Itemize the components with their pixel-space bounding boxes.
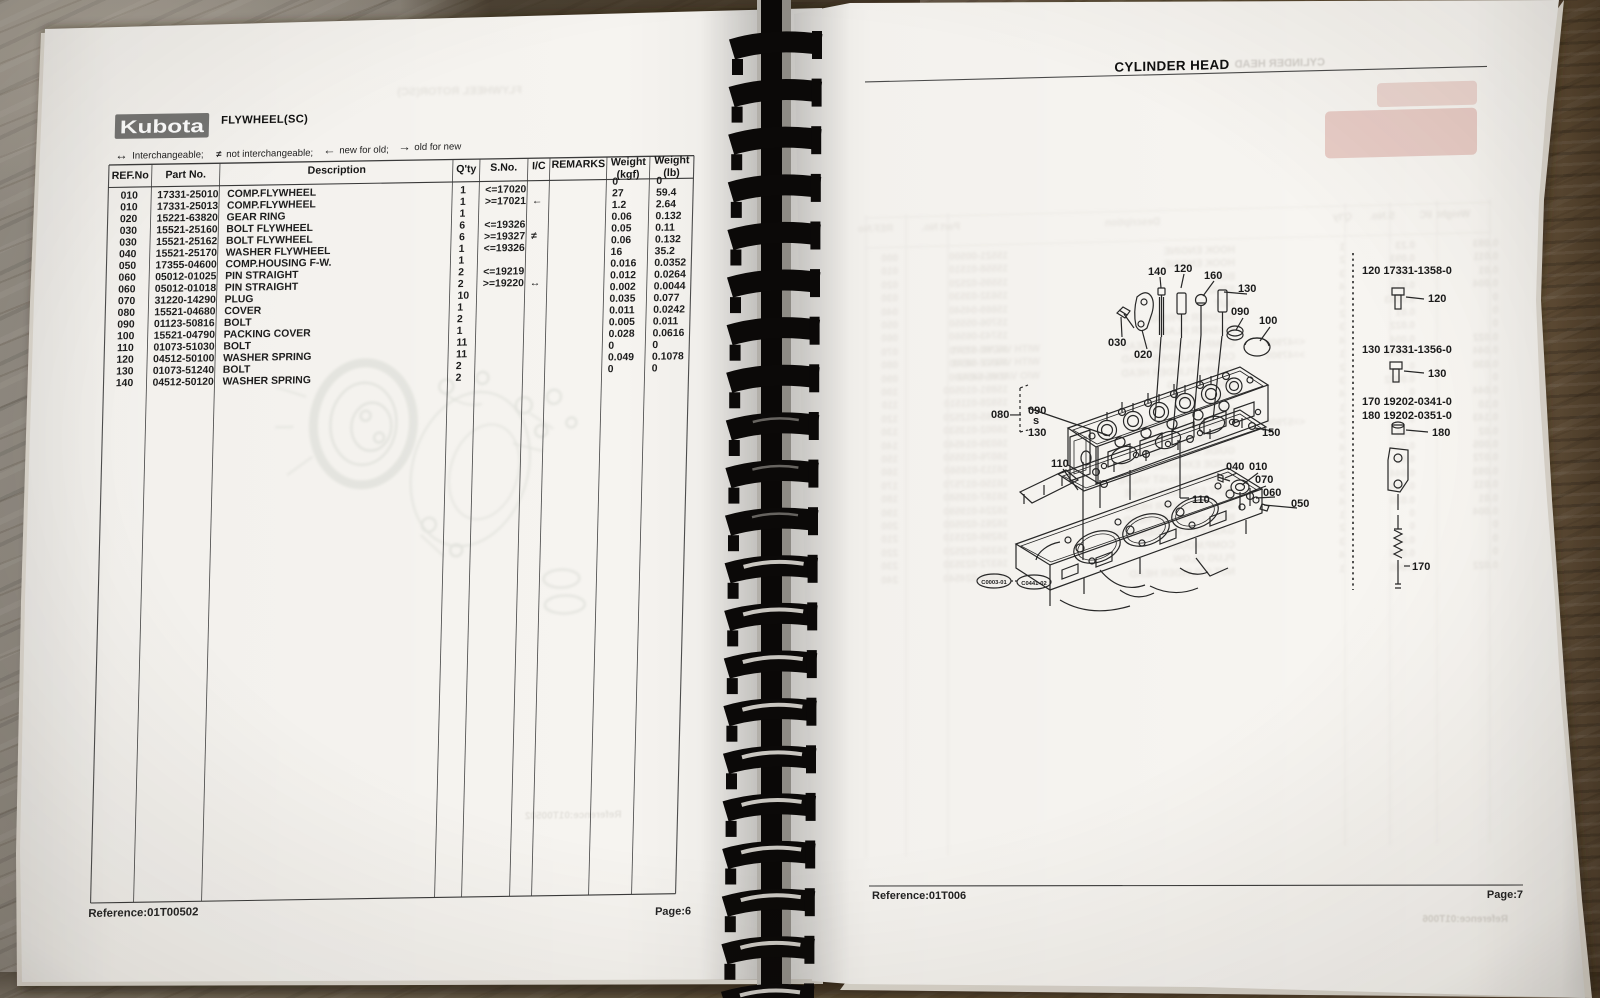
svg-text:0.1078: 0.1078 [652, 351, 684, 363]
svg-text:<=19219: <=19219 [483, 266, 525, 278]
svg-text:1: 1 [459, 209, 465, 220]
svg-text:0.011: 0.011 [609, 305, 635, 316]
svg-text:Description: Description [1105, 217, 1160, 229]
svg-text:3: 3 [1339, 269, 1345, 280]
svg-text:0.011: 0.011 [1473, 251, 1498, 263]
svg-text:110: 110 [881, 400, 898, 411]
svg-text:0: 0 [1492, 292, 1498, 303]
svg-text:230: 230 [881, 561, 898, 572]
svg-text:0.0352: 0.0352 [654, 258, 686, 270]
svg-text:01123-50816: 01123-50816 [154, 318, 215, 330]
svg-text:200: 200 [881, 521, 898, 532]
svg-text:Page:7: Page:7 [1487, 889, 1523, 901]
svg-text:0.0242: 0.0242 [653, 304, 685, 316]
svg-text:160: 160 [1204, 270, 1222, 282]
svg-text:140: 140 [881, 441, 898, 452]
svg-text:6: 6 [459, 220, 465, 231]
svg-text:PACKING COVER: PACKING COVER [224, 328, 312, 340]
svg-text:Q'ty: Q'ty [456, 163, 477, 175]
svg-text:0: 0 [1492, 372, 1498, 383]
svg-text:11: 11 [456, 338, 467, 349]
svg-text:0.022: 0.022 [1390, 320, 1415, 332]
svg-text:FLYWHEEL ROTOR(SC): FLYWHEEL ROTOR(SC) [397, 84, 522, 98]
svg-text:0.093: 0.093 [1473, 238, 1498, 250]
svg-text:0: 0 [608, 364, 614, 375]
svg-text:0.01: 0.01 [1478, 265, 1498, 276]
svg-text:070: 070 [881, 347, 898, 358]
svg-text:070: 070 [1255, 474, 1273, 486]
svg-text:<=19326: <=19326 [484, 243, 526, 255]
svg-text:REF.No: REF.No [112, 169, 150, 182]
svg-text:PIN STRAIGHT: PIN STRAIGHT [225, 270, 299, 282]
svg-text:030: 030 [881, 293, 898, 304]
svg-text:16002-013530: 16002-013530 [943, 424, 1008, 437]
svg-text:>=19327: >=19327 [484, 231, 526, 243]
svg-text:1: 1 [1339, 403, 1345, 414]
svg-text:0.035: 0.035 [609, 294, 635, 305]
svg-text:0.143: 0.143 [1473, 412, 1498, 424]
svg-text:2: 2 [1339, 470, 1345, 481]
svg-text:130: 130 [881, 427, 898, 438]
svg-text:WASHER SPRING: WASHER SPRING [223, 352, 312, 364]
svg-text:(lb): (lb) [663, 167, 680, 179]
svg-text:16298-021510: 16298-021510 [943, 531, 1008, 544]
svg-text:170: 170 [881, 481, 898, 492]
svg-text:Reference:01T00502: Reference:01T00502 [524, 810, 621, 823]
svg-text:↔: ↔ [115, 148, 128, 162]
svg-text:3: 3 [1339, 537, 1345, 548]
svg-text:110: 110 [1192, 494, 1210, 506]
svg-text:0: 0 [608, 341, 614, 352]
svg-text:000: 000 [881, 253, 898, 264]
svg-text:0: 0 [1492, 533, 1498, 544]
svg-text:15521-25162: 15521-25162 [156, 236, 218, 248]
svg-text:15632-03530: 15632-03530 [949, 290, 1008, 302]
svg-text:0.002: 0.002 [610, 282, 636, 293]
svg-text:0.093: 0.093 [1473, 466, 1498, 478]
svg-text:PIN STRAIGHT: PIN STRAIGHT [225, 282, 299, 294]
svg-text:080: 080 [881, 360, 898, 371]
svg-text:0.022: 0.022 [1473, 560, 1498, 572]
svg-text:COMP.FLYWHEEL: COMP.FLYWHEEL [227, 188, 317, 200]
svg-text:0: 0 [1409, 508, 1415, 519]
svg-text:←: ← [532, 196, 543, 207]
svg-text:Interchangeable;: Interchangeable; [132, 149, 204, 161]
svg-text:0.072: 0.072 [1473, 452, 1498, 464]
svg-text:1: 1 [459, 244, 465, 255]
svg-text:0.049: 0.049 [608, 352, 634, 363]
svg-text:FLYWHEEL(SC): FLYWHEEL(SC) [221, 113, 308, 126]
svg-text:030: 030 [1108, 337, 1126, 349]
svg-text:15891-010500: 15891-010500 [943, 384, 1008, 397]
svg-text:Part No.: Part No. [921, 222, 960, 234]
svg-text:15595-02520: 15595-02520 [949, 277, 1008, 289]
svg-text:150: 150 [1262, 427, 1280, 439]
svg-text:0.022: 0.022 [1390, 441, 1415, 453]
svg-text:C0003-01: C0003-01 [981, 580, 1007, 586]
svg-text:0: 0 [1492, 318, 1498, 329]
svg-text:WITH VALVE SEAT: WITH VALVE SEAT [951, 357, 1040, 370]
svg-text:CYLINDER HEAD: CYLINDER HEAD [1114, 57, 1229, 75]
svg-text:180: 180 [881, 494, 898, 505]
svg-text:180: 180 [1432, 427, 1450, 439]
svg-text:0: 0 [1409, 361, 1415, 372]
svg-text:140: 140 [116, 378, 134, 389]
svg-text:15706-05550: 15706-05550 [949, 317, 1008, 329]
svg-text:0.23: 0.23 [1395, 240, 1415, 251]
svg-text:010: 010 [120, 202, 138, 213]
svg-text:050: 050 [881, 320, 898, 331]
svg-text:Description: Description [307, 164, 366, 177]
svg-text:120 17331-1358-0: 120 17331-1358-0 [1362, 265, 1452, 277]
svg-text:180 19202-0351-0: 180 19202-0351-0 [1362, 410, 1452, 422]
svg-text:<=17020: <=17020 [485, 184, 527, 196]
svg-text:>=19220: >=19220 [483, 278, 525, 290]
svg-text:070: 070 [118, 296, 136, 307]
svg-text:0.016: 0.016 [610, 258, 636, 269]
svg-text:0: 0 [1492, 305, 1498, 316]
svg-text:Reference:01T006: Reference:01T006 [872, 890, 966, 902]
svg-text:0.030: 0.030 [1473, 359, 1498, 371]
svg-text:170: 170 [1412, 561, 1430, 573]
svg-text:0.077: 0.077 [653, 293, 679, 304]
svg-text:240: 240 [881, 575, 898, 586]
svg-text:31220-14290: 31220-14290 [154, 295, 216, 307]
svg-text:0.022: 0.022 [1473, 332, 1498, 344]
svg-text:020: 020 [120, 214, 138, 225]
svg-text:16261-020500: 16261-020500 [943, 518, 1008, 531]
svg-text:0.004: 0.004 [1473, 278, 1498, 290]
svg-text:<=47908: <=47908 [1265, 337, 1305, 349]
svg-text:04512-50100: 04512-50100 [153, 353, 215, 365]
svg-text:W/O VALVE SEAT: W/O VALVE SEAT [957, 371, 1040, 384]
svg-text:04512-50120: 04512-50120 [152, 377, 214, 389]
svg-text:130: 130 [1028, 427, 1046, 439]
svg-text:I/C: I/C [532, 160, 546, 172]
svg-text:BOLT FLYWHEEL: BOLT FLYWHEEL [226, 235, 313, 247]
svg-text:010: 010 [120, 191, 138, 202]
svg-text:0.02: 0.02 [1478, 426, 1498, 437]
svg-text:old for new: old for new [414, 141, 461, 153]
svg-text:BOLT: BOLT [223, 364, 251, 375]
svg-text:2: 2 [1339, 416, 1345, 427]
svg-text:0.012: 0.012 [610, 270, 636, 281]
svg-text:COMP.HOUSING F-W.: COMP.HOUSING F-W. [225, 258, 331, 271]
svg-text:1: 1 [457, 302, 463, 313]
svg-text:new for old;: new for old; [339, 145, 389, 157]
svg-text:100: 100 [117, 331, 135, 342]
svg-text:010: 010 [881, 266, 898, 277]
svg-text:1: 1 [1339, 456, 1345, 467]
svg-text:060: 060 [881, 333, 898, 344]
svg-text:160: 160 [881, 467, 898, 478]
svg-text:210: 210 [881, 534, 898, 545]
svg-text:0.011: 0.011 [1473, 479, 1498, 491]
svg-text:3: 3 [1339, 376, 1345, 387]
svg-text:080: 080 [991, 409, 1009, 421]
svg-text:—: — [1010, 409, 1021, 421]
svg-text:BOLT FLYWHEEL: BOLT FLYWHEEL [226, 223, 313, 235]
svg-text:Kubota: Kubota [120, 115, 205, 137]
svg-text:15521-00500: 15521-00500 [949, 250, 1008, 262]
svg-text:030: 030 [119, 237, 137, 248]
svg-text:4: 4 [1339, 389, 1345, 400]
svg-text:Weight: Weight [654, 154, 690, 167]
svg-text:11: 11 [456, 349, 467, 360]
svg-text:35.2: 35.2 [654, 246, 675, 257]
svg-text:↔: ↔ [530, 278, 541, 289]
svg-text:2: 2 [1339, 255, 1345, 266]
svg-text:16039-014540: 16039-014540 [943, 438, 1008, 451]
svg-text:Weight: Weight [1436, 209, 1470, 221]
svg-text:4: 4 [1339, 443, 1345, 454]
svg-text:HOOK ENGINE: HOOK ENGINE [1164, 245, 1235, 258]
svg-text:040: 040 [1226, 461, 1244, 473]
svg-text:10: 10 [457, 291, 469, 302]
svg-text:0.132: 0.132 [655, 234, 681, 245]
svg-text:090: 090 [1231, 306, 1249, 318]
svg-text:2: 2 [458, 279, 464, 290]
svg-text:3: 3 [1339, 483, 1345, 494]
svg-text:2: 2 [456, 361, 462, 372]
svg-text:16150-017570: 16150-017570 [943, 478, 1008, 491]
svg-text:15521-04790: 15521-04790 [154, 330, 216, 342]
svg-text:080: 080 [117, 308, 135, 319]
svg-text:05012-01025: 05012-01025 [155, 271, 217, 283]
svg-text:15558-01510: 15558-01510 [949, 263, 1008, 275]
svg-text:0.030: 0.030 [1390, 495, 1415, 507]
svg-text:COMP.MOUNT: COMP.MOUNT [1167, 540, 1235, 553]
svg-text:1: 1 [460, 197, 466, 208]
svg-text:0.0044: 0.0044 [654, 281, 686, 293]
svg-text:0: 0 [652, 363, 658, 374]
svg-text:27: 27 [612, 188, 624, 199]
svg-text:0.093: 0.093 [1390, 253, 1415, 265]
svg-text:WASHER PLAIN: WASHER PLAIN [1158, 325, 1235, 338]
svg-text:060: 060 [1263, 487, 1281, 499]
svg-text:0.01: 0.01 [1478, 493, 1498, 504]
svg-text:0.132: 0.132 [655, 211, 681, 222]
svg-text:120: 120 [1428, 293, 1446, 305]
svg-text:2: 2 [457, 314, 463, 325]
svg-text:2: 2 [1339, 363, 1345, 374]
svg-text:4: 4 [1339, 282, 1345, 293]
svg-text:4: 4 [1339, 497, 1345, 508]
svg-text:1: 1 [1339, 242, 1345, 253]
svg-text:100: 100 [881, 387, 898, 398]
svg-text:16372-023530: 16372-023530 [943, 558, 1008, 571]
svg-text:0.028: 0.028 [608, 329, 634, 340]
svg-text:0.044: 0.044 [1473, 385, 1498, 397]
svg-text:1: 1 [1339, 349, 1345, 360]
svg-text:15521-25160: 15521-25160 [156, 224, 218, 236]
svg-text:050: 050 [1291, 498, 1309, 510]
svg-text:s: s [1033, 415, 1039, 427]
svg-text:01073-51030: 01073-51030 [153, 342, 215, 354]
svg-text:←: ← [323, 143, 336, 157]
svg-text:PLUG: PLUG [224, 294, 253, 305]
svg-text:220: 220 [881, 548, 898, 559]
svg-text:I/C: I/C [1419, 210, 1432, 221]
svg-text:0.005: 0.005 [609, 317, 635, 328]
svg-text:0.06: 0.06 [611, 235, 632, 246]
svg-text:>=17021: >=17021 [485, 196, 527, 208]
svg-text:3: 3 [1339, 322, 1345, 333]
svg-text:1.2: 1.2 [612, 200, 627, 211]
svg-text:1: 1 [457, 326, 463, 337]
svg-text:0.0063: 0.0063 [1384, 294, 1415, 306]
svg-text:020: 020 [1134, 349, 1152, 361]
svg-text:120: 120 [1174, 263, 1192, 275]
svg-text:17331-25013: 17331-25013 [157, 201, 219, 213]
svg-text:4: 4 [1339, 550, 1345, 561]
svg-text:2: 2 [458, 267, 464, 278]
svg-text:COMP.FLYWHEEL: COMP.FLYWHEEL [227, 199, 317, 211]
svg-text:BOLT: BOLT [223, 341, 251, 352]
svg-text:4: 4 [1339, 336, 1345, 347]
svg-text:16224-019590: 16224-019590 [943, 505, 1008, 518]
svg-text:S.No.: S.No. [490, 161, 517, 173]
svg-text:<=19326: <=19326 [484, 220, 526, 232]
svg-text:15221-63820: 15221-63820 [156, 213, 218, 225]
svg-text:090: 090 [881, 374, 898, 385]
svg-text:010: 010 [1249, 461, 1267, 473]
svg-text:05012-01018: 05012-01018 [155, 283, 217, 295]
svg-text:1: 1 [1339, 296, 1345, 307]
svg-text:140: 140 [1148, 266, 1166, 278]
svg-text:16: 16 [610, 247, 622, 258]
svg-text:S.No.: S.No. [1369, 211, 1395, 223]
svg-text:C0441-02: C0441-02 [1021, 581, 1046, 587]
svg-text:1: 1 [458, 256, 464, 267]
svg-text:1: 1 [1339, 510, 1345, 521]
svg-text:>=47909: >=47909 [1265, 350, 1305, 362]
svg-text:0.02: 0.02 [1395, 535, 1415, 546]
svg-text:59.4: 59.4 [656, 187, 677, 198]
svg-text:030: 030 [120, 226, 138, 237]
svg-text:0: 0 [1492, 546, 1498, 557]
svg-text:REMARKS: REMARKS [551, 158, 605, 171]
svg-text:150: 150 [881, 454, 898, 465]
svg-text:2: 2 [1339, 309, 1345, 320]
svg-text:0: 0 [1492, 519, 1498, 530]
svg-text:WASHER SPRING: WASHER SPRING [222, 375, 311, 387]
svg-text:0: 0 [1409, 521, 1415, 532]
svg-text:16076-015550: 16076-015550 [943, 451, 1008, 464]
svg-text:120: 120 [881, 414, 898, 425]
svg-text:→: → [398, 140, 411, 154]
svg-text:0: 0 [652, 340, 658, 351]
svg-text:Weight: Weight [611, 156, 647, 169]
svg-text:130: 130 [1238, 283, 1256, 295]
svg-text:0: 0 [656, 176, 662, 187]
svg-text:COVER: COVER [224, 306, 262, 318]
svg-text:15743-06560: 15743-06560 [949, 330, 1008, 342]
svg-text:040: 040 [119, 249, 137, 260]
svg-text:110: 110 [1051, 458, 1069, 470]
svg-text:120: 120 [116, 355, 134, 366]
svg-text:050: 050 [119, 261, 137, 272]
svg-text:1: 1 [460, 185, 466, 196]
svg-text:16335-022520: 16335-022520 [943, 545, 1008, 558]
svg-text:090: 090 [117, 319, 135, 330]
svg-text:Part No.: Part No. [165, 168, 206, 181]
svg-text:not interchangeable;: not interchangeable; [226, 148, 313, 160]
svg-text:16113-016560: 16113-016560 [944, 464, 1008, 477]
svg-text:PLUG GLOW: PLUG GLOW [1173, 553, 1235, 566]
svg-text:17355-04600: 17355-04600 [155, 260, 217, 272]
svg-text:0.10: 0.10 [1478, 399, 1498, 410]
svg-text:Q'ty: Q'ty [1333, 212, 1352, 223]
svg-text:15521-04680: 15521-04680 [154, 306, 216, 318]
svg-text:≠: ≠ [531, 231, 537, 242]
svg-text:0: 0 [612, 177, 618, 188]
svg-text:2: 2 [1339, 523, 1345, 534]
svg-text:0.044: 0.044 [1390, 468, 1415, 480]
svg-text:0.011: 0.011 [1390, 280, 1415, 292]
svg-text:130: 130 [1428, 368, 1446, 380]
svg-text:WASHER FLYWHEEL: WASHER FLYWHEEL [226, 246, 332, 259]
svg-text:1: 1 [1339, 564, 1345, 575]
svg-text:0.0616: 0.0616 [652, 328, 684, 340]
svg-text:2.64: 2.64 [656, 199, 677, 210]
svg-text:170 19202-0341-0: 170 19202-0341-0 [1362, 396, 1452, 408]
svg-text:0.005: 0.005 [1473, 439, 1498, 451]
svg-text:040: 040 [881, 307, 898, 318]
svg-text:0.044: 0.044 [1473, 345, 1498, 357]
svg-text:16187-018580: 16187-018580 [943, 491, 1008, 504]
svg-text:0.05: 0.05 [611, 223, 632, 234]
svg-text:6: 6 [459, 232, 465, 243]
svg-text:17331-25010: 17331-25010 [157, 189, 219, 201]
svg-text:GEAR RING: GEAR RING [226, 212, 285, 224]
svg-text:100: 100 [1259, 315, 1277, 327]
svg-text:3: 3 [1339, 430, 1345, 441]
svg-text:110: 110 [117, 343, 134, 354]
svg-text:190: 190 [881, 508, 898, 519]
svg-text:15669-04540: 15669-04540 [949, 304, 1008, 316]
svg-text:020: 020 [881, 280, 898, 291]
svg-text:(kgf): (kgf) [616, 169, 639, 181]
svg-text:060: 060 [118, 284, 136, 295]
svg-text:REF.No: REF.No [858, 223, 893, 235]
svg-text:01073-51240: 01073-51240 [153, 365, 215, 377]
svg-text:0.0264: 0.0264 [654, 269, 686, 281]
svg-text:0.011: 0.011 [653, 316, 679, 327]
svg-text:Reference:01T006: Reference:01T006 [1422, 914, 1508, 925]
svg-text:BOLT: BOLT [224, 318, 252, 329]
svg-text:0.06: 0.06 [611, 212, 632, 223]
svg-text:0.004: 0.004 [1473, 506, 1498, 518]
svg-text:2: 2 [455, 373, 461, 384]
svg-text:060: 060 [118, 273, 136, 284]
svg-text:0.02: 0.02 [1395, 454, 1415, 465]
svg-text:130 17331-1356-0: 130 17331-1356-0 [1362, 344, 1452, 356]
svg-text:CYLINDER HEAD: CYLINDER HEAD [1235, 56, 1325, 70]
svg-text:130: 130 [116, 366, 134, 377]
svg-text:15521-25170: 15521-25170 [156, 248, 218, 260]
svg-text:WITH VALVE SEAT: WITH VALVE SEAT [951, 344, 1040, 357]
svg-text:Reference:01T00502: Reference:01T00502 [88, 906, 198, 920]
svg-text:0.11: 0.11 [655, 223, 675, 234]
svg-text:Page:6: Page:6 [655, 905, 691, 918]
